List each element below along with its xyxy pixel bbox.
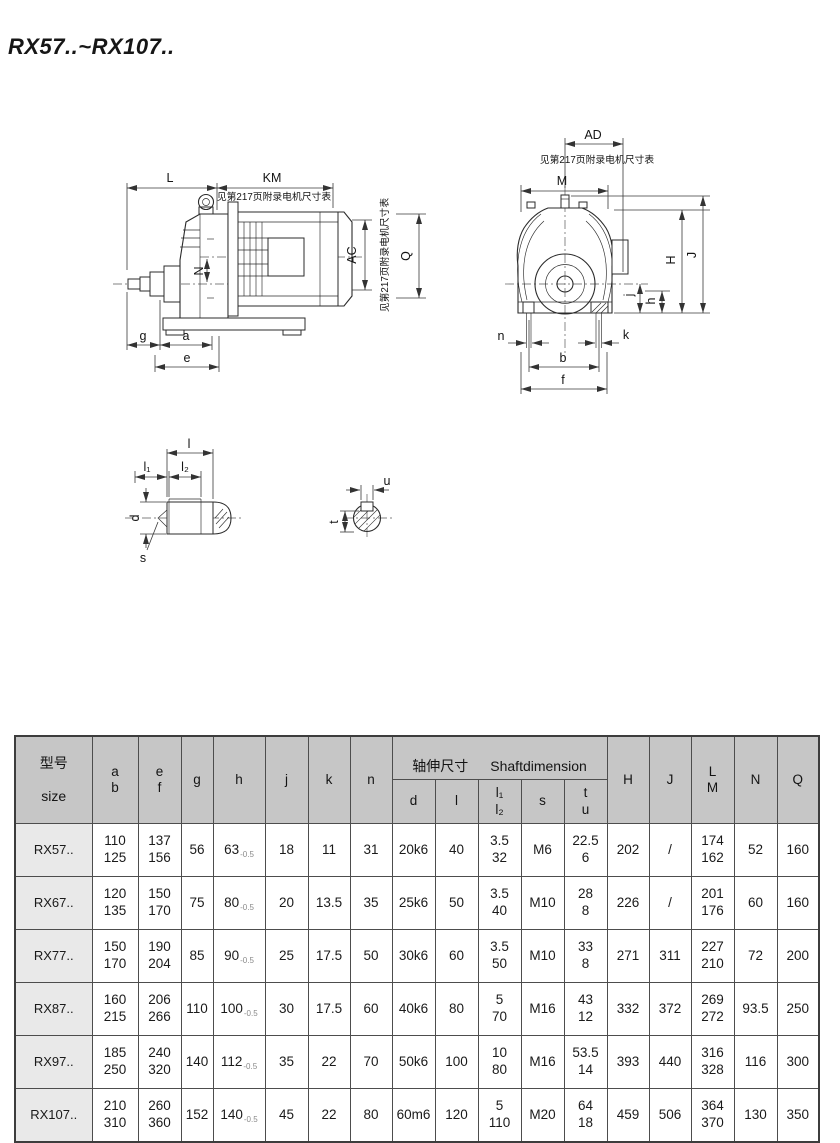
cell-value: 17.5 [316, 1001, 342, 1016]
cell-value: 85 [189, 948, 204, 963]
cell-value: M10 [529, 948, 555, 963]
dim-label-f: f [561, 373, 565, 387]
cell-value: 440 [659, 1054, 682, 1069]
dim-label-b: b [560, 351, 567, 365]
cell-h: 80-0.5 [213, 877, 265, 930]
cell-value: 90 [224, 948, 239, 963]
cell-value: 18 [279, 842, 294, 857]
motor-note-front: 见第217页附录电机尺寸表 [540, 153, 655, 166]
cell-value: 372 [659, 1001, 682, 1016]
dim-label-H: H [664, 255, 678, 264]
front-view-drawing: AD 见第217页附录电机尺寸表 M j h H J n k b f [498, 128, 710, 394]
cell-ab: 160 215 [92, 983, 138, 1036]
cell-l1l2: 3.5 40 [478, 877, 521, 930]
cell-l: 40 [435, 824, 478, 877]
cell-h: 63-0.5 [213, 824, 265, 877]
cell-value: 393 [617, 1054, 640, 1069]
cell-h: 90-0.5 [213, 930, 265, 983]
cell-l1l2: 5 70 [478, 983, 521, 1036]
cell-LM: 269 272 [691, 983, 734, 1036]
cell-value: 300 [787, 1054, 810, 1069]
header-H: H [607, 736, 649, 824]
cell-value: 80 [363, 1107, 378, 1122]
cell-value: 250 [787, 1001, 810, 1016]
cell-value: 60 [363, 1001, 378, 1016]
cell-ef: 206 266 [138, 983, 181, 1036]
cell-value: 5 70 [492, 992, 507, 1024]
cell-LM: 201 176 [691, 877, 734, 930]
header-shaft-cn: 轴伸尺寸 [412, 758, 468, 774]
header-k: k [308, 736, 350, 824]
cell-d: 30k6 [392, 930, 435, 983]
cell-value: 140 [220, 1107, 243, 1122]
cell-tu: 33 8 [564, 930, 607, 983]
catalog-page: { "page": { "title": "RX57..~RX107.." },… [0, 0, 840, 1140]
dim-label-h: h [644, 297, 658, 304]
cell-value: 185 250 [104, 1045, 127, 1077]
cell-value: 200 [787, 948, 810, 963]
header-size-en: size [16, 788, 92, 805]
cell-ef: 190 204 [138, 930, 181, 983]
cell-J: 311 [649, 930, 691, 983]
cell-n: 80 [350, 1089, 392, 1143]
cell-tu: 28 8 [564, 877, 607, 930]
cell-tu: 64 18 [564, 1089, 607, 1143]
cell-value: 174 162 [701, 833, 724, 865]
cell-g: 110 [181, 983, 213, 1036]
cell-value: 110 [186, 1001, 208, 1016]
cell-value: 22 [321, 1054, 336, 1069]
table-body: RX57..110 125137 1565663-0.518113120k640… [15, 824, 819, 1143]
cell-l: 50 [435, 877, 478, 930]
cell-k: 22 [308, 1089, 350, 1143]
cell-value: 226 [617, 895, 640, 910]
cell-s: M10 [521, 930, 564, 983]
cell-value: 33 8 [578, 939, 593, 971]
cell-ab: 150 170 [92, 930, 138, 983]
dim-label-k: k [623, 328, 630, 342]
dim-label-N: N [192, 266, 206, 275]
cell-j: 20 [265, 877, 308, 930]
cell-size: RX107.. [15, 1089, 92, 1143]
cell-value: RX67.. [34, 895, 74, 910]
header-ef: e f [138, 736, 181, 824]
cell-value: 116 [745, 1054, 767, 1069]
cell-value: 40 [449, 842, 464, 857]
cell-value: 60m6 [397, 1107, 431, 1122]
cell-value: 160 [787, 842, 810, 857]
cell-value: 311 [659, 948, 681, 963]
header-d: d [392, 780, 435, 824]
cell-value: RX57.. [34, 842, 74, 857]
cell-value: 10 80 [492, 1045, 507, 1077]
cell-LM: 227 210 [691, 930, 734, 983]
cell-value: / [668, 895, 672, 910]
cell-l1l2: 5 110 [478, 1089, 521, 1143]
dim-label-M: M [557, 174, 567, 188]
table-row: RX57..110 125137 1565663-0.518113120k640… [15, 824, 819, 877]
cell-value: 3.5 40 [490, 886, 509, 918]
cell-value: 332 [617, 1001, 640, 1016]
cell-value: 240 320 [148, 1045, 171, 1077]
cell-d: 20k6 [392, 824, 435, 877]
header-s: s [521, 780, 564, 824]
cell-value: RX97.. [34, 1054, 74, 1069]
header-l: l [435, 780, 478, 824]
cell-value: 100 [220, 1001, 243, 1016]
cell-value: 52 [748, 842, 763, 857]
cell-value: 150 170 [148, 886, 171, 918]
cell-Q: 200 [777, 930, 819, 983]
cell-g: 152 [181, 1089, 213, 1143]
cell-value: 202 [617, 842, 640, 857]
cell-l: 80 [435, 983, 478, 1036]
cell-l: 60 [435, 930, 478, 983]
cell-value: 70 [363, 1054, 378, 1069]
cell-ab: 185 250 [92, 1036, 138, 1089]
table-row: RX97..185 250240 320140112-0.535227050k6… [15, 1036, 819, 1089]
dim-label-l1: l₁ [144, 460, 151, 474]
table-row: RX107..210 310260 360152140-0.545228060m… [15, 1089, 819, 1143]
cell-k: 13.5 [308, 877, 350, 930]
cell-value: 50 [363, 948, 378, 963]
cell-value: 50 [449, 895, 464, 910]
cell-value: 152 [186, 1107, 209, 1122]
cell-j: 25 [265, 930, 308, 983]
cell-Q: 250 [777, 983, 819, 1036]
cell-d: 25k6 [392, 877, 435, 930]
cell-tolerance: -0.5 [243, 1062, 257, 1071]
header-shaft-group: 轴伸尺寸Shaftdimension [392, 736, 607, 780]
header-N: N [734, 736, 777, 824]
cell-h: 112-0.5 [213, 1036, 265, 1089]
cell-j: 45 [265, 1089, 308, 1143]
cell-value: 137 156 [148, 833, 171, 865]
cell-j: 35 [265, 1036, 308, 1089]
header-LM: L M [691, 736, 734, 824]
cell-j: 30 [265, 983, 308, 1036]
cell-N: 72 [734, 930, 777, 983]
dim-label-AC: AC [345, 246, 359, 263]
side-view-drawing: L KM 见第217页附录电机尺寸表 N AC 见第217页附录电机尺寸表 Q … [113, 171, 426, 372]
cell-ef: 240 320 [138, 1036, 181, 1089]
cell-value: 35 [279, 1054, 294, 1069]
cell-l1l2: 3.5 50 [478, 930, 521, 983]
dim-label-Q: Q [399, 251, 413, 261]
cell-tolerance: -0.5 [244, 1009, 258, 1018]
cell-value: 210 310 [104, 1098, 127, 1130]
cell-LM: 174 162 [691, 824, 734, 877]
dim-label-a: a [183, 329, 190, 343]
cell-g: 85 [181, 930, 213, 983]
cell-Q: 350 [777, 1089, 819, 1143]
cell-s: M6 [521, 824, 564, 877]
cell-size: RX97.. [15, 1036, 92, 1089]
cell-value: 120 [445, 1107, 468, 1122]
header-shaft-en: Shaftdimension [490, 758, 587, 774]
header-h: h [213, 736, 265, 824]
header-size: 型号 size [15, 736, 92, 824]
cell-n: 60 [350, 983, 392, 1036]
dim-label-J: J [685, 252, 699, 258]
cell-value: M10 [529, 895, 555, 910]
cell-ab: 110 125 [92, 824, 138, 877]
cell-value: 150 170 [104, 939, 127, 971]
cell-l1l2: 10 80 [478, 1036, 521, 1089]
cell-value: 364 370 [701, 1098, 724, 1130]
cell-value: 120 135 [104, 886, 127, 918]
cell-value: 112 [221, 1054, 243, 1069]
cell-J: 372 [649, 983, 691, 1036]
cell-value: 20 [279, 895, 294, 910]
cell-value: 506 [659, 1107, 682, 1122]
cell-value: 100 [445, 1054, 468, 1069]
cell-Q: 160 [777, 824, 819, 877]
cell-value: M16 [529, 1001, 555, 1016]
dim-label-L: L [167, 171, 174, 185]
cell-ab: 120 135 [92, 877, 138, 930]
cell-value: RX77.. [34, 948, 74, 963]
cell-value: 130 [744, 1107, 767, 1122]
cell-g: 140 [181, 1036, 213, 1089]
cell-value: M16 [529, 1054, 555, 1069]
cell-N: 60 [734, 877, 777, 930]
cell-value: 11 [322, 842, 336, 857]
cell-d: 40k6 [392, 983, 435, 1036]
cell-value: 56 [189, 842, 204, 857]
cell-value: 17.5 [316, 948, 342, 963]
cell-value: 45 [279, 1107, 294, 1122]
cell-tu: 53.5 14 [564, 1036, 607, 1089]
cell-value: 40k6 [399, 1001, 428, 1016]
cell-value: 3.5 32 [490, 833, 509, 865]
cell-value: 5 110 [489, 1098, 511, 1130]
cell-value: 80 [224, 895, 239, 910]
cell-s: M10 [521, 877, 564, 930]
dim-label-AD: AD [584, 128, 601, 142]
cell-value: 3.5 50 [490, 939, 509, 971]
cell-J: 506 [649, 1089, 691, 1143]
cell-Q: 160 [777, 877, 819, 930]
cell-n: 70 [350, 1036, 392, 1089]
cell-value: 25k6 [399, 895, 428, 910]
cell-tu: 43 12 [564, 983, 607, 1036]
cell-l: 120 [435, 1089, 478, 1143]
cell-value: 53.5 14 [572, 1045, 598, 1077]
cell-tu: 22.5 6 [564, 824, 607, 877]
cell-h: 140-0.5 [213, 1089, 265, 1143]
cell-size: RX77.. [15, 930, 92, 983]
cell-l1l2: 3.5 32 [478, 824, 521, 877]
cell-value: 22.5 6 [572, 833, 598, 865]
cell-value: 28 8 [578, 886, 593, 918]
cell-d: 60m6 [392, 1089, 435, 1143]
cell-value: M20 [529, 1107, 555, 1122]
cell-value: 459 [617, 1107, 640, 1122]
header-size-cn: 型号 [16, 755, 92, 772]
cell-N: 93.5 [734, 983, 777, 1036]
header-n: n [350, 736, 392, 824]
cell-ef: 137 156 [138, 824, 181, 877]
cell-value: 316 328 [701, 1045, 724, 1077]
dim-label-e: e [184, 351, 191, 365]
cell-value: 80 [449, 1001, 464, 1016]
table-row: RX87..160 215206 266110100-0.53017.56040… [15, 983, 819, 1036]
dim-label-n: n [498, 329, 505, 343]
cell-size: RX57.. [15, 824, 92, 877]
dimension-table-wrapper: 型号 size a b e f g h j k n 轴伸尺寸Shaftdimen… [14, 735, 820, 1143]
cell-s: M16 [521, 983, 564, 1036]
cell-tolerance: -0.5 [240, 850, 254, 859]
cell-ab: 210 310 [92, 1089, 138, 1143]
cell-value: 63 [224, 842, 239, 857]
cell-value: 60 [449, 948, 464, 963]
table-row: RX77..150 170190 2048590-0.52517.55030k6… [15, 930, 819, 983]
cell-H: 393 [607, 1036, 649, 1089]
cell-value: 201 176 [701, 886, 724, 918]
cell-value: 110 125 [104, 833, 127, 865]
header-Q: Q [777, 736, 819, 824]
cell-value: 60 [748, 895, 763, 910]
cell-value: RX87.. [34, 1001, 74, 1016]
cell-value: 30k6 [399, 948, 428, 963]
cell-s: M20 [521, 1089, 564, 1143]
cell-value: 140 [186, 1054, 209, 1069]
dim-label-s: s [140, 551, 146, 565]
cell-size: RX87.. [15, 983, 92, 1036]
cell-H: 271 [607, 930, 649, 983]
cell-J: 440 [649, 1036, 691, 1089]
dim-label-KM: KM [263, 171, 282, 185]
shaft-detail-drawing: l l₁ l₂ d s [125, 437, 242, 565]
header-J: J [649, 736, 691, 824]
cell-value: 190 204 [148, 939, 171, 971]
cell-value: 35 [363, 895, 378, 910]
cell-k: 22 [308, 1036, 350, 1089]
cell-H: 332 [607, 983, 649, 1036]
dim-label-g: g [140, 329, 147, 343]
cell-H: 459 [607, 1089, 649, 1143]
cell-value: 64 18 [578, 1098, 593, 1130]
dim-label-u: u [384, 474, 391, 488]
cell-H: 202 [607, 824, 649, 877]
cell-N: 116 [734, 1036, 777, 1089]
header-l1l2: l₁ l₂ [478, 780, 521, 824]
dim-label-l2: l₂ [181, 460, 189, 474]
cell-ef: 150 170 [138, 877, 181, 930]
cell-tolerance: -0.5 [240, 903, 254, 912]
cell-N: 130 [734, 1089, 777, 1143]
cell-value: 22 [321, 1107, 336, 1122]
cell-value: 30 [279, 1001, 294, 1016]
technical-drawings: L KM 见第217页附录电机尺寸表 N AC 见第217页附录电机尺寸表 Q … [0, 0, 840, 640]
dimension-table: 型号 size a b e f g h j k n 轴伸尺寸Shaftdimen… [14, 735, 820, 1143]
cell-s: M16 [521, 1036, 564, 1089]
cell-n: 50 [350, 930, 392, 983]
cell-ef: 260 360 [138, 1089, 181, 1143]
cell-n: 35 [350, 877, 392, 930]
cell-N: 52 [734, 824, 777, 877]
cell-value: 13.5 [316, 895, 342, 910]
cell-k: 11 [308, 824, 350, 877]
cell-d: 50k6 [392, 1036, 435, 1089]
cell-value: 269 272 [701, 992, 724, 1024]
dim-label-d: d [128, 514, 142, 521]
cell-value: 260 360 [148, 1098, 171, 1130]
cell-value: 206 266 [148, 992, 171, 1024]
header-g: g [181, 736, 213, 824]
cell-LM: 364 370 [691, 1089, 734, 1143]
cell-value: 93.5 [742, 1001, 768, 1016]
cell-value: M6 [533, 842, 552, 857]
motor-note-top: 见第217页附录电机尺寸表 [217, 190, 332, 203]
cell-Q: 300 [777, 1036, 819, 1089]
cell-value: 160 215 [104, 992, 127, 1024]
dim-label-l: l [188, 437, 191, 451]
motor-note-vertical: 见第217页附录电机尺寸表 [378, 198, 391, 313]
cell-value: 72 [748, 948, 763, 963]
cell-H: 226 [607, 877, 649, 930]
header-tu: t u [564, 780, 607, 824]
cell-value: 75 [189, 895, 204, 910]
cell-value: 271 [617, 948, 640, 963]
cell-value: 31 [363, 842, 378, 857]
header-ab: a b [92, 736, 138, 824]
cell-h: 100-0.5 [213, 983, 265, 1036]
cell-value: 350 [787, 1107, 810, 1122]
cell-value: 25 [279, 948, 294, 963]
cell-value: 20k6 [399, 842, 428, 857]
cell-value: 50k6 [399, 1054, 428, 1069]
cell-n: 31 [350, 824, 392, 877]
cell-j: 18 [265, 824, 308, 877]
cell-value: RX107.. [30, 1107, 77, 1122]
cell-size: RX67.. [15, 877, 92, 930]
dim-label-j: j [622, 294, 636, 298]
cell-l: 100 [435, 1036, 478, 1089]
cell-value: 160 [787, 895, 810, 910]
cell-tolerance: -0.5 [240, 956, 254, 965]
cell-g: 75 [181, 877, 213, 930]
cell-tolerance: -0.5 [244, 1115, 258, 1124]
dim-label-t: t [327, 520, 341, 524]
cell-J: / [649, 877, 691, 930]
cell-J: / [649, 824, 691, 877]
cell-k: 17.5 [308, 930, 350, 983]
header-j: j [265, 736, 308, 824]
table-row: RX67..120 135150 1707580-0.52013.53525k6… [15, 877, 819, 930]
cell-value: / [668, 842, 672, 857]
cell-LM: 316 328 [691, 1036, 734, 1089]
shaft-section-drawing: u t [327, 474, 392, 540]
cell-value: 227 210 [701, 939, 724, 971]
cell-g: 56 [181, 824, 213, 877]
cell-k: 17.5 [308, 983, 350, 1036]
cell-value: 43 12 [578, 992, 593, 1024]
